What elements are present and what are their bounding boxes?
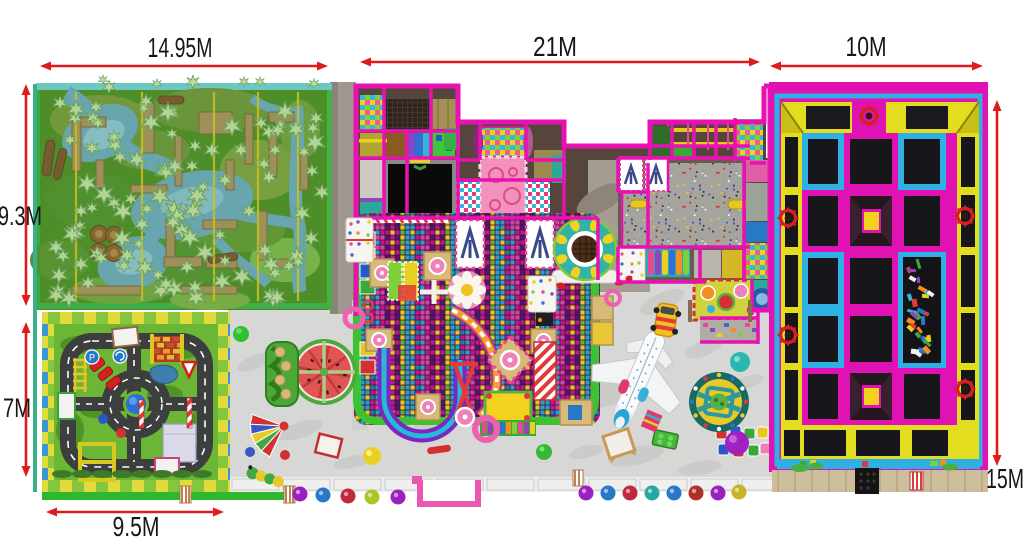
svg-text:P: P: [89, 353, 95, 363]
svg-text:10M: 10M: [846, 31, 887, 62]
svg-text:7M: 7M: [3, 393, 31, 423]
svg-text:9.5M: 9.5M: [113, 511, 160, 542]
svg-text:15M: 15M: [986, 463, 1024, 494]
svg-text:14.95M: 14.95M: [148, 32, 213, 63]
svg-text:21M: 21M: [533, 31, 577, 62]
svg-text:9.3M: 9.3M: [0, 201, 42, 231]
